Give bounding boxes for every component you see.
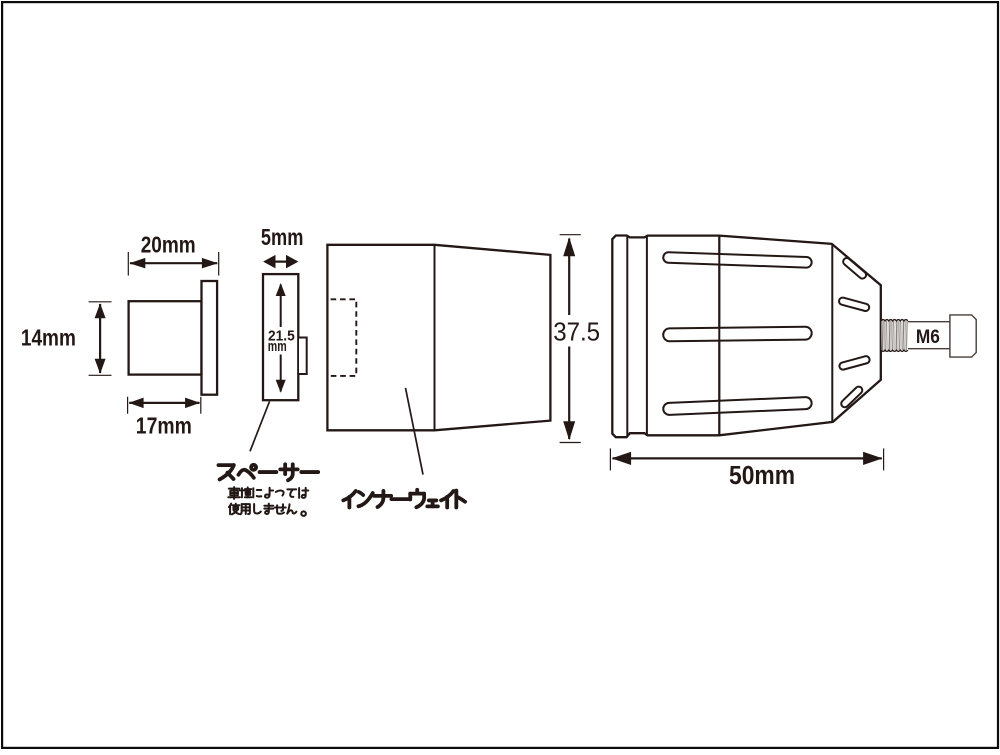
svg-text:5mm: 5mm — [261, 224, 304, 250]
svg-text:17mm: 17mm — [136, 413, 192, 439]
svg-text:M6: M6 — [916, 326, 940, 348]
svg-text:50mm: 50mm — [729, 462, 795, 490]
svg-text:mm: mm — [268, 338, 287, 355]
svg-text:20mm: 20mm — [141, 231, 196, 257]
svg-text:14mm: 14mm — [21, 324, 76, 350]
svg-text:37.5: 37.5 — [553, 316, 600, 346]
